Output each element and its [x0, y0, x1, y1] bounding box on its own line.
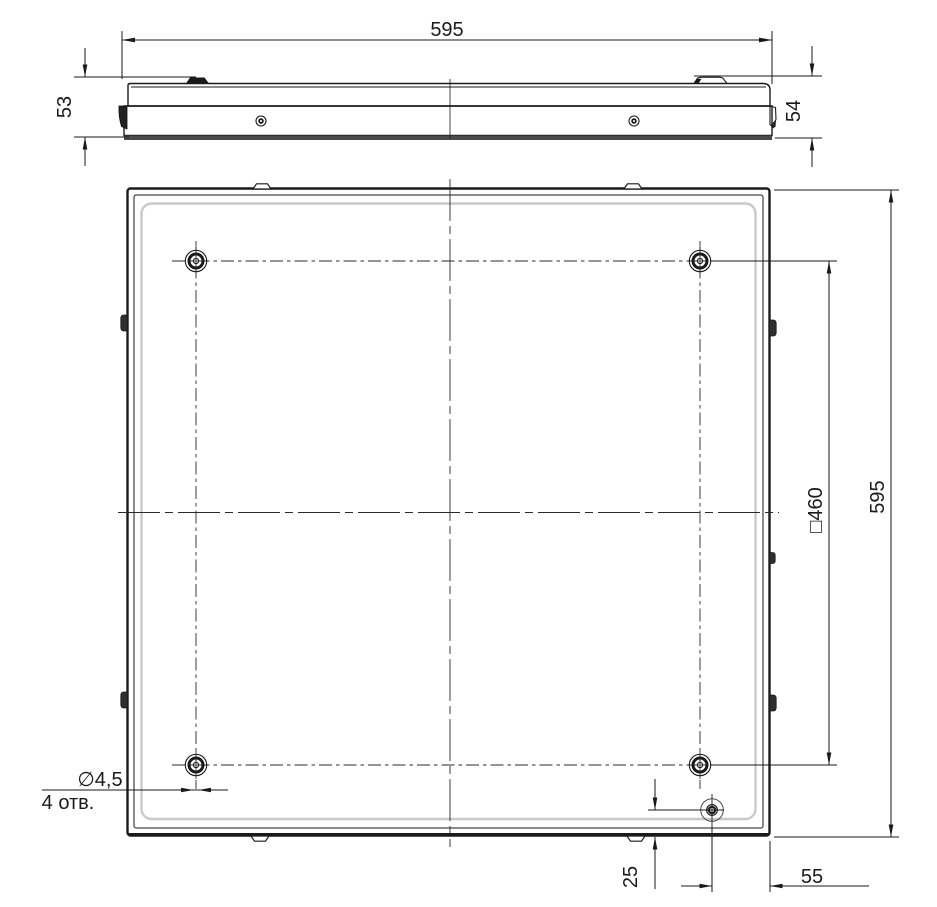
back-view — [118, 179, 779, 847]
right-edge-tab-middle — [770, 553, 776, 564]
dim-inlet-right-offset: 55 — [681, 828, 869, 892]
panel-dimension-drawing: 595 53 54 — [0, 0, 937, 907]
mounting-hole-bottom-right — [689, 751, 710, 779]
profile-screw-right — [629, 116, 639, 126]
left-end-latch — [119, 106, 127, 129]
top-edge-tab-left — [253, 184, 271, 189]
mounting-hole-top-right — [689, 247, 710, 275]
dim-side-width-label: 595 — [430, 19, 463, 41]
profile-base-band — [124, 136, 772, 141]
bottom-edge-tab-left — [251, 836, 269, 841]
diffuser-inner-frame — [142, 204, 756, 820]
side-view — [119, 77, 776, 140]
profile-lower-band — [124, 106, 772, 136]
left-edge-tab-lower — [121, 692, 128, 708]
hole-diameter-label: ∅4,5 — [77, 769, 122, 791]
dim-side-height-left-label: 53 — [54, 96, 76, 118]
bottom-edge-tab-right — [627, 836, 645, 841]
panel-inner-frame-line — [134, 195, 763, 828]
dim-side-height-right-label: 54 — [783, 100, 805, 122]
panel-outer-frame — [128, 189, 770, 836]
technical-drawing-canvas: 595 53 54 — [0, 0, 937, 907]
mounting-hole-bottom-left — [185, 751, 206, 779]
dim-back-height: 595 — [774, 190, 899, 837]
dim-mounting-square-label: □460 — [805, 487, 827, 532]
profile-screw-left — [256, 116, 266, 126]
dim-back-height-label: 595 — [867, 480, 889, 513]
left-spring-clip — [186, 78, 209, 84]
power-inlet-hole — [698, 794, 724, 828]
hole-count-label: 4 отв. — [42, 792, 95, 814]
top-edge-tab-right — [624, 184, 642, 189]
dim-side-width: 595 — [122, 19, 772, 84]
dim-inlet-bottom-offset-label: 25 — [620, 866, 642, 888]
dim-inlet-right-offset-label: 55 — [801, 866, 823, 888]
dim-mounting-square: □460 — [710, 261, 837, 765]
hole-callout: ∅4,5 4 отв. — [42, 769, 228, 814]
right-edge-tab-upper — [770, 320, 777, 336]
left-edge-tab-upper — [121, 315, 128, 331]
mounting-hole-top-left — [185, 247, 206, 275]
right-edge-tab-lower — [770, 695, 777, 711]
